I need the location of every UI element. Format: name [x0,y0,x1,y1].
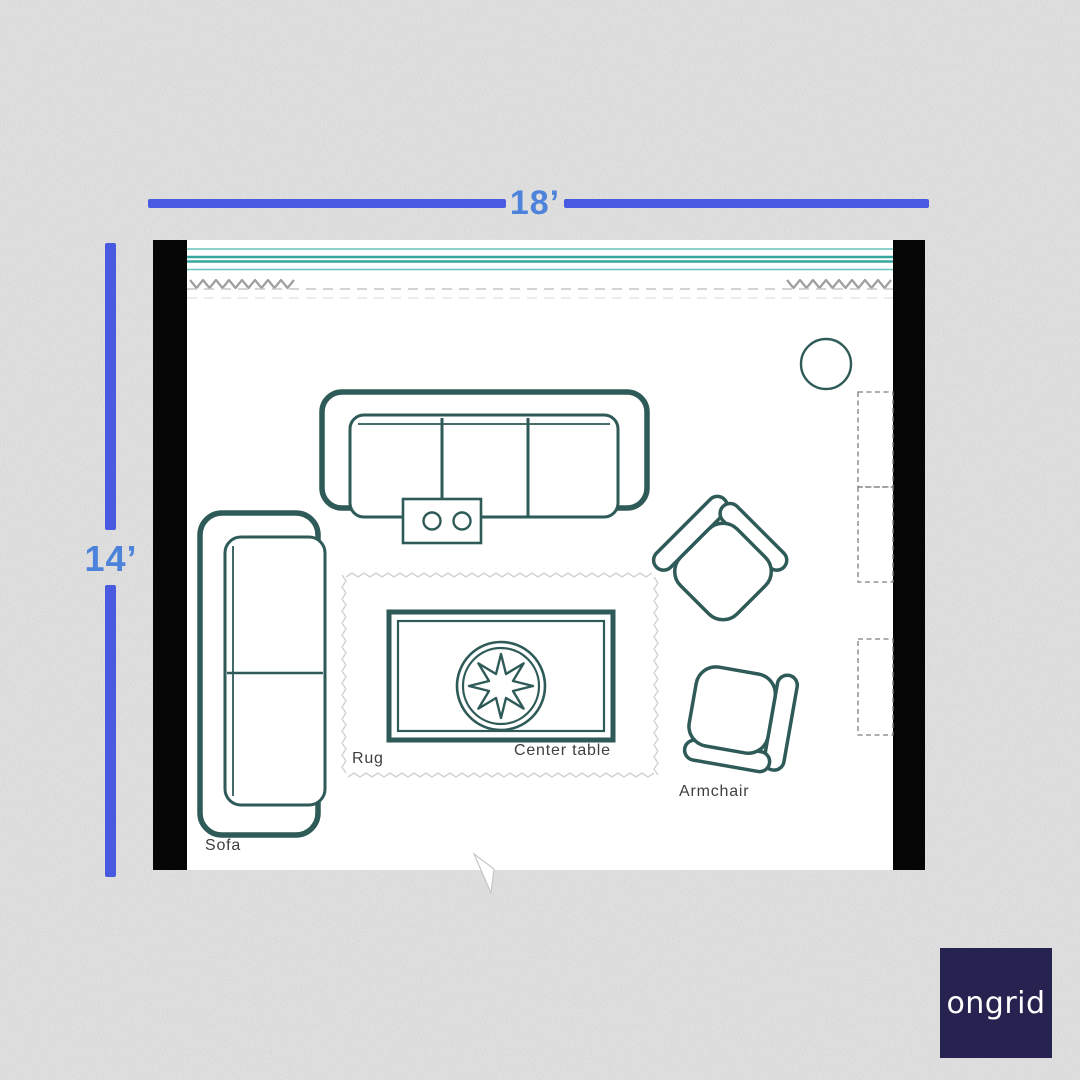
width-dimension-label: 18’ [500,184,570,223]
ongrid-logo: ongrid [940,948,1052,1058]
sofa-label: Sofa [205,837,241,855]
center-table-label: Center table [514,742,611,760]
armchair-label: Armchair [679,783,749,801]
ongrid-logo-text: ongrid [946,986,1045,1021]
center-table [389,612,613,740]
armchair-bottom [683,660,799,776]
height-dimension-bar-top [105,243,116,530]
height-dimension-bar-bottom [105,585,116,877]
sofa-tray-table [403,499,481,543]
floor-plan [0,0,1080,1080]
width-dimension-bar-right [564,199,929,208]
height-dimension-label: 14’ [78,538,144,580]
poster-canvas: 18’ 14’ Sofa Rug Center table Armchair o… [0,0,1080,1080]
plant-circle [801,339,851,389]
width-dimension-bar-left [148,199,506,208]
left-wall [153,240,187,870]
rug-label: Rug [352,750,384,768]
sofa-two-seat [200,513,325,835]
right-wall [893,240,925,870]
